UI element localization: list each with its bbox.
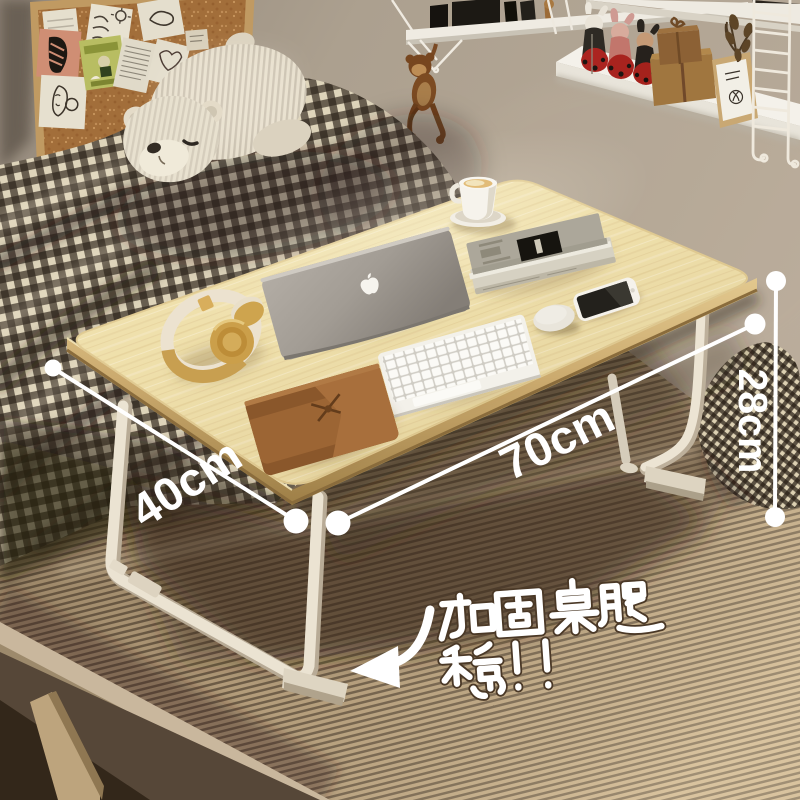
- svg-text:28cm: 28cm: [730, 369, 776, 474]
